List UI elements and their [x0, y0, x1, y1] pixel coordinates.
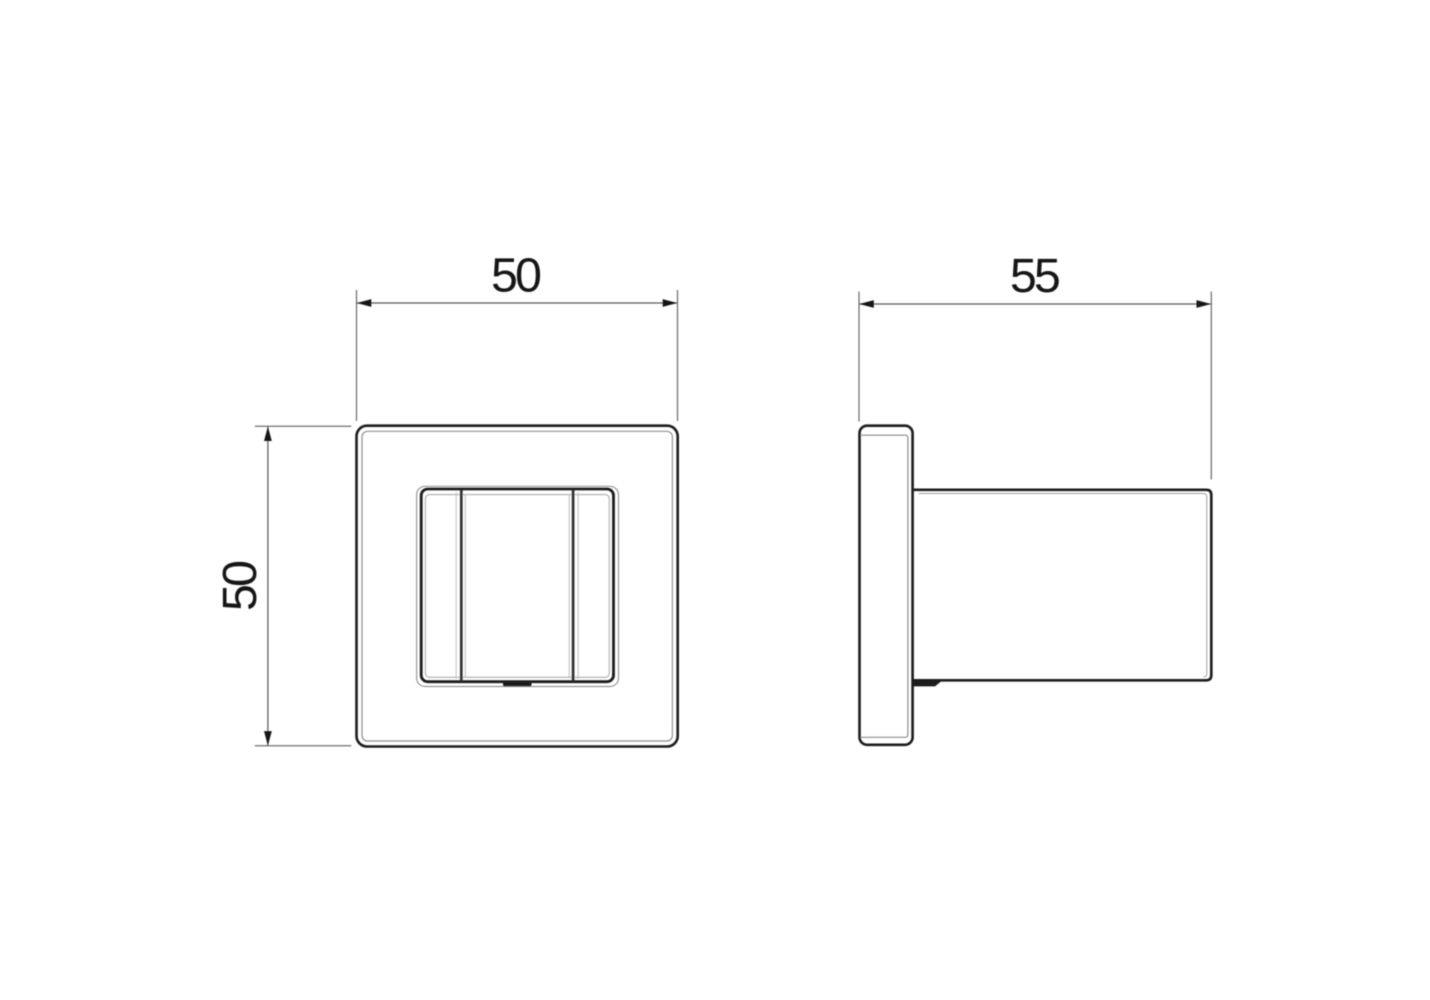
svg-text:50: 50 — [491, 248, 542, 302]
svg-text:55: 55 — [1010, 249, 1061, 303]
svg-text:50: 50 — [213, 560, 267, 611]
